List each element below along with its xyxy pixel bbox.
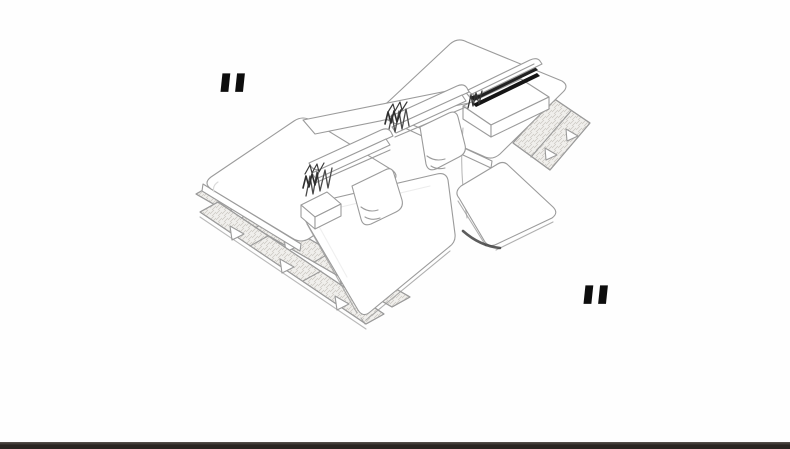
close-quote-icon: " xyxy=(572,279,613,347)
bottom-divider-bar xyxy=(0,442,790,449)
slab-front-right xyxy=(457,163,556,251)
sofa-sketch-canvas xyxy=(0,0,790,449)
sofa-sketch-illustration: Light pencil-style isometric line drawin… xyxy=(0,0,790,449)
page-canvas: " xyxy=(0,0,790,449)
